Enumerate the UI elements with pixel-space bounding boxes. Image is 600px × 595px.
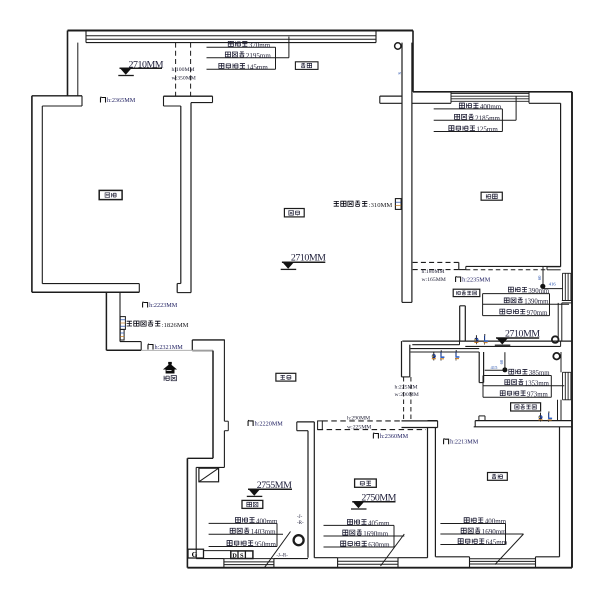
svg-text:400mm: 400mm xyxy=(480,103,502,111)
svg-text:1390mm: 1390mm xyxy=(524,299,549,306)
svg-text:416: 416 xyxy=(549,281,557,286)
svg-text:h:2365MM: h:2365MM xyxy=(107,97,136,104)
svg-text:60: 60 xyxy=(537,275,542,280)
svg-text:h:2213MM: h:2213MM xyxy=(450,439,479,446)
svg-text:S: S xyxy=(240,552,244,559)
svg-text:405mm: 405mm xyxy=(368,519,390,527)
svg-text:h:100MM: h:100MM xyxy=(172,67,195,73)
svg-text:h:2321MM: h:2321MM xyxy=(155,344,184,351)
svg-text:1353mm: 1353mm xyxy=(525,381,550,388)
svg-text:-J--R-: -J--R- xyxy=(276,554,288,559)
svg-text:145mm: 145mm xyxy=(246,63,268,71)
svg-text:h:2223MM: h:2223MM xyxy=(149,302,178,309)
svg-text:-J-: -J- xyxy=(297,515,303,520)
svg-text:630mm: 630mm xyxy=(368,541,390,549)
svg-text:370mm: 370mm xyxy=(249,41,271,49)
svg-text::310MM: :310MM xyxy=(369,202,393,209)
svg-text:645mm: 645mm xyxy=(486,539,508,547)
svg-text:h:2235MM: h:2235MM xyxy=(462,277,491,284)
svg-text:2195mm: 2195mm xyxy=(246,52,271,60)
svg-text:2185mm: 2185mm xyxy=(475,114,500,122)
svg-text:-R-: -R- xyxy=(297,521,304,526)
svg-text:h:180MM: h:180MM xyxy=(422,269,445,275)
svg-text:h:290MM: h:290MM xyxy=(347,415,370,421)
svg-text:w:350MM: w:350MM xyxy=(172,76,196,82)
svg-text:G: G xyxy=(192,550,198,559)
svg-text:h:2220MM: h:2220MM xyxy=(255,420,284,427)
svg-text:400mm: 400mm xyxy=(485,518,507,526)
svg-text:385mm: 385mm xyxy=(529,370,550,377)
svg-text:60: 60 xyxy=(499,359,504,364)
svg-text:950mm: 950mm xyxy=(255,541,277,549)
svg-text:970mm: 970mm xyxy=(527,310,548,317)
svg-text:1403mm: 1403mm xyxy=(251,528,276,536)
svg-text:h:2360MM: h:2360MM xyxy=(380,433,409,440)
svg-text:125mm: 125mm xyxy=(476,126,498,134)
svg-text:1690mm: 1690mm xyxy=(363,530,388,538)
svg-text::1826MM: :1826MM xyxy=(162,322,189,329)
svg-text:w:225MM: w:225MM xyxy=(347,424,371,430)
svg-text:S: S xyxy=(397,72,402,75)
svg-text:w:165MM: w:165MM xyxy=(422,277,446,283)
svg-text:D: D xyxy=(232,552,237,559)
svg-text:w:200MM: w:200MM xyxy=(395,392,419,398)
svg-text:400mm: 400mm xyxy=(256,517,278,525)
svg-text:973mm: 973mm xyxy=(527,392,548,399)
svg-text:h:225MM: h:225MM xyxy=(395,384,418,390)
svg-text:1690mm: 1690mm xyxy=(482,528,507,536)
svg-text:415: 415 xyxy=(491,365,499,370)
